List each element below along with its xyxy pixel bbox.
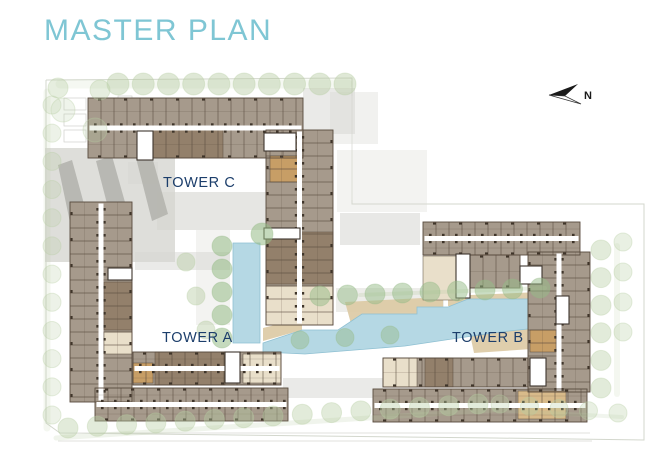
door-tick [302, 201, 304, 204]
door-tick [96, 377, 98, 380]
door-tick [178, 371, 181, 373]
balcony-tick [129, 264, 131, 267]
door-tick [198, 123, 201, 125]
door-tick [562, 284, 564, 287]
door-tick [548, 401, 551, 403]
balcony-tick [195, 382, 198, 384]
door-tick [104, 299, 106, 302]
door-tick [554, 258, 556, 261]
stair-core [225, 352, 240, 383]
balcony-tick [433, 252, 436, 254]
door-tick [179, 400, 182, 402]
balcony-tick [480, 256, 483, 258]
stair-core [137, 131, 153, 160]
balcony-tick [497, 359, 500, 361]
door-tick [379, 401, 382, 403]
tree [591, 295, 611, 315]
door-tick [96, 338, 98, 341]
door-tick [166, 407, 169, 409]
door-tick [217, 371, 220, 373]
tree [146, 413, 166, 433]
door-tick [520, 241, 523, 243]
site-plan-canvas: N TOWER C TOWER A TOWER B [0, 0, 650, 467]
door-tick [243, 371, 246, 373]
tree [365, 284, 385, 304]
balcony-tick [330, 218, 332, 221]
balcony-tick [221, 382, 224, 384]
door-tick [302, 214, 304, 217]
balcony-tick [445, 384, 448, 386]
balcony-tick [267, 270, 269, 273]
tree [292, 404, 312, 424]
door-tick [250, 123, 253, 125]
corridor [97, 402, 287, 407]
master-plan-page: { "page": { "title": "MASTER PLAN" }, "c… [0, 0, 650, 467]
door-tick [104, 377, 106, 380]
door-tick [554, 284, 556, 287]
door-tick [96, 234, 98, 237]
tree [87, 416, 107, 436]
north-arrow-dark-blade [549, 84, 578, 96]
door-tick [104, 312, 106, 315]
door-tick [574, 408, 577, 410]
tree [58, 418, 78, 438]
balcony-tick [131, 389, 134, 391]
balcony-tick [280, 99, 283, 101]
door-tick [96, 208, 98, 211]
balcony-tick [471, 359, 474, 361]
tree [521, 397, 539, 415]
door-tick [101, 407, 104, 409]
balcony-tick [169, 353, 172, 355]
door-tick [263, 123, 266, 125]
balcony-tick [563, 252, 566, 254]
door-tick [270, 400, 273, 402]
door-tick [455, 241, 458, 243]
door-tick [533, 241, 536, 243]
door-tick [283, 407, 286, 409]
door-tick [554, 271, 556, 274]
balcony-tick [195, 353, 198, 355]
tree [43, 124, 61, 142]
balcony-tick [330, 166, 332, 169]
door-tick [191, 371, 194, 373]
tree [48, 78, 68, 98]
door-tick [244, 400, 247, 402]
tree [43, 181, 61, 199]
tree [591, 378, 611, 398]
door-tick [104, 247, 106, 250]
door-tick [178, 364, 181, 366]
door-tick [295, 253, 297, 256]
balcony-tick [150, 99, 153, 101]
tree [233, 73, 255, 95]
door-tick [276, 123, 279, 125]
door-tick [205, 407, 208, 409]
hardscape-area [340, 213, 420, 245]
door-tick [133, 123, 136, 125]
stair-core [108, 268, 132, 280]
tree [609, 404, 627, 422]
tree [157, 73, 179, 95]
tree [43, 152, 61, 170]
door-tick [96, 247, 98, 250]
balcony-tick [383, 390, 386, 392]
balcony-tick [267, 192, 269, 195]
balcony-tick [529, 262, 531, 265]
door-tick [231, 407, 234, 409]
balcony-tick [273, 382, 276, 384]
door-tick [468, 234, 471, 236]
tree [43, 209, 61, 227]
door-tick [159, 123, 162, 125]
door-tick [127, 407, 130, 409]
door-tick [120, 131, 123, 133]
door-tick [217, 364, 220, 366]
balcony-tick [273, 353, 276, 355]
stair-core [530, 358, 546, 386]
balcony-tick [539, 390, 542, 392]
balcony-tick [129, 316, 131, 319]
balcony-tick [565, 390, 568, 392]
door-tick [562, 336, 564, 339]
stair-core [556, 296, 569, 324]
door-tick [562, 258, 564, 261]
door-tick [302, 227, 304, 230]
door-tick [302, 318, 304, 321]
label-tower-a: TOWER A [162, 330, 233, 346]
balcony-tick [487, 419, 490, 421]
door-tick [442, 241, 445, 243]
tree [334, 73, 356, 95]
door-tick [152, 364, 155, 366]
door-tick [114, 407, 117, 409]
balcony-tick [71, 212, 73, 215]
door-tick [204, 364, 207, 366]
balcony-tick [124, 155, 127, 157]
tree [90, 80, 110, 100]
balcony-tick [587, 340, 589, 343]
north-arrow-light-blade [549, 95, 581, 104]
hardscape-area [337, 150, 427, 212]
door-tick [263, 131, 266, 133]
door-tick [104, 325, 106, 328]
tree [284, 73, 306, 95]
balcony-tick [485, 252, 488, 254]
tree [309, 73, 331, 95]
tree [51, 98, 75, 122]
door-tick [104, 351, 106, 354]
door-tick [295, 214, 297, 217]
door-tick [295, 175, 297, 178]
door-tick [96, 260, 98, 263]
balcony-tick [143, 382, 146, 384]
door-tick [302, 240, 304, 243]
door-tick [295, 240, 297, 243]
tree [212, 236, 232, 256]
tree [132, 73, 154, 95]
tree [591, 323, 611, 343]
door-tick [96, 312, 98, 315]
door-tick [562, 271, 564, 274]
door-tick [146, 123, 149, 125]
door-tick [295, 305, 297, 308]
door-tick [554, 375, 556, 378]
balcony-tick [129, 238, 131, 241]
balcony-tick [393, 384, 396, 386]
door-tick [153, 400, 156, 402]
balcony-tick [587, 288, 589, 291]
balcony-tick [471, 384, 474, 386]
balcony-tick [129, 212, 131, 215]
balcony-tick [71, 238, 73, 241]
balcony-tick [497, 384, 500, 386]
door-tick [185, 131, 188, 133]
balcony-tick [71, 290, 73, 293]
door-tick [269, 364, 272, 366]
balcony-tick [487, 390, 490, 392]
balcony-tick [143, 353, 146, 355]
door-tick [104, 260, 106, 263]
tree [310, 286, 330, 306]
balcony-tick [537, 252, 540, 254]
door-tick [269, 371, 272, 373]
tree [177, 253, 195, 271]
door-tick [520, 234, 523, 236]
door-tick [276, 131, 279, 133]
balcony-tick [98, 155, 101, 157]
balcony-tick [129, 368, 131, 371]
door-tick [302, 292, 304, 295]
balcony-tick [419, 359, 422, 361]
balcony-tick [221, 353, 224, 355]
tree [83, 118, 107, 142]
door-tick [172, 123, 175, 125]
tree [43, 237, 61, 255]
balcony-tick [267, 166, 269, 169]
balcony-tick [124, 99, 127, 101]
door-tick [554, 362, 556, 365]
door-tick [104, 208, 106, 211]
balcony-tick [409, 419, 412, 421]
door-tick [295, 162, 297, 165]
door-tick [302, 175, 304, 178]
tree [322, 403, 342, 423]
balcony-tick [129, 290, 131, 293]
balcony-tick [228, 155, 231, 157]
balcony-tick [330, 140, 332, 143]
balcony-tick [435, 390, 438, 392]
balcony-tick [537, 223, 540, 225]
door-tick [302, 149, 304, 152]
balcony-tick [565, 419, 568, 421]
tree [43, 378, 61, 396]
balcony-tick [513, 419, 516, 421]
door-tick [104, 286, 106, 289]
balcony-tick [523, 384, 526, 386]
balcony-tick [409, 390, 412, 392]
tree [503, 279, 523, 299]
door-tick [289, 123, 292, 125]
door-tick [295, 188, 297, 191]
balcony-tick [254, 155, 257, 157]
balcony-tick [435, 419, 438, 421]
tree [380, 399, 400, 419]
tree [183, 73, 205, 95]
door-tick [237, 131, 240, 133]
swimming-pool [233, 243, 260, 343]
balcony-tick [563, 223, 566, 225]
door-tick [127, 400, 130, 402]
balcony-tick [235, 389, 238, 391]
label-tower-b: TOWER B [452, 330, 524, 346]
tree [291, 331, 309, 349]
balcony-tick [247, 353, 250, 355]
balcony-tick [267, 296, 269, 299]
door-tick [107, 123, 110, 125]
tree [212, 305, 232, 325]
door-tick [257, 400, 260, 402]
door-tick [192, 400, 195, 402]
balcony-tick [330, 270, 332, 273]
balcony-tick [176, 99, 179, 101]
door-tick [218, 407, 221, 409]
door-tick [211, 131, 214, 133]
unit-accent [530, 330, 556, 352]
balcony-tick [157, 389, 160, 391]
door-tick [507, 241, 510, 243]
tree [409, 397, 429, 417]
door-tick [243, 364, 246, 366]
balcony-tick [445, 359, 448, 361]
balcony-tick [247, 382, 250, 384]
door-tick [101, 400, 104, 402]
door-tick [554, 349, 556, 352]
balcony-tick [261, 389, 264, 391]
door-tick [104, 273, 106, 276]
balcony-tick [459, 223, 462, 225]
corridor [135, 366, 280, 371]
balcony-tick [330, 296, 332, 299]
door-tick [302, 279, 304, 282]
tree [263, 406, 283, 426]
north-arrow: N [549, 84, 592, 104]
door-tick [481, 241, 484, 243]
tree [381, 326, 399, 344]
door-tick [494, 241, 497, 243]
balcony-tick [539, 419, 542, 421]
door-tick [96, 325, 98, 328]
door-tick [140, 400, 143, 402]
door-tick [468, 241, 471, 243]
tree [468, 394, 488, 414]
stair-core [264, 133, 296, 151]
hardscape-area [330, 92, 378, 144]
door-tick [152, 371, 155, 373]
door-tick [96, 299, 98, 302]
balcony-tick [209, 389, 212, 391]
door-tick [172, 131, 175, 133]
door-tick [139, 364, 142, 366]
balcony-tick [587, 366, 589, 369]
balcony-tick [511, 223, 514, 225]
tree [117, 415, 137, 435]
door-tick [224, 131, 227, 133]
door-tick [104, 364, 106, 367]
tree [43, 265, 61, 283]
door-tick [114, 400, 117, 402]
door-tick [533, 234, 536, 236]
door-tick [572, 234, 575, 236]
door-tick [494, 234, 497, 236]
balcony-tick [71, 342, 73, 345]
door-tick [192, 407, 195, 409]
balcony-tick [176, 155, 179, 157]
door-tick [104, 234, 106, 237]
door-tick [302, 253, 304, 256]
tree [351, 401, 371, 421]
door-tick [562, 375, 564, 378]
door-tick [133, 131, 136, 133]
tree [448, 281, 468, 301]
tree [234, 408, 254, 428]
balcony-tick [506, 256, 509, 258]
door-tick [562, 362, 564, 365]
tree [420, 282, 440, 302]
balcony-tick [523, 359, 526, 361]
door-tick [302, 266, 304, 269]
balcony-tick [433, 223, 436, 225]
door-tick [140, 407, 143, 409]
balcony-tick [71, 264, 73, 267]
door-tick [295, 279, 297, 282]
balcony-tick [202, 155, 205, 157]
door-tick [250, 131, 253, 133]
balcony-tick [71, 394, 73, 397]
door-tick [562, 349, 564, 352]
door-tick [96, 286, 98, 289]
tree [338, 285, 358, 305]
door-tick [211, 123, 214, 125]
tree [614, 293, 632, 311]
balcony-tick [419, 384, 422, 386]
door-tick [256, 371, 259, 373]
balcony-tick [183, 389, 186, 391]
balcony-tick [587, 314, 589, 317]
balcony-tick [228, 99, 231, 101]
balcony-tick [169, 382, 172, 384]
label-tower-c: TOWER C [163, 175, 235, 191]
tree [439, 396, 459, 416]
north-label: N [584, 90, 592, 102]
door-tick [256, 364, 259, 366]
tree [175, 411, 195, 431]
door-tick [104, 338, 106, 341]
door-tick [405, 408, 408, 410]
balcony-tick [267, 218, 269, 221]
door-tick [120, 123, 123, 125]
corridor [425, 236, 579, 241]
door-tick [159, 131, 162, 133]
tree [212, 282, 232, 302]
tree [43, 350, 61, 368]
door-tick [257, 407, 260, 409]
door-tick [559, 241, 562, 243]
balcony-tick [383, 419, 386, 421]
door-tick [572, 241, 575, 243]
door-tick [295, 266, 297, 269]
tree [614, 233, 632, 251]
